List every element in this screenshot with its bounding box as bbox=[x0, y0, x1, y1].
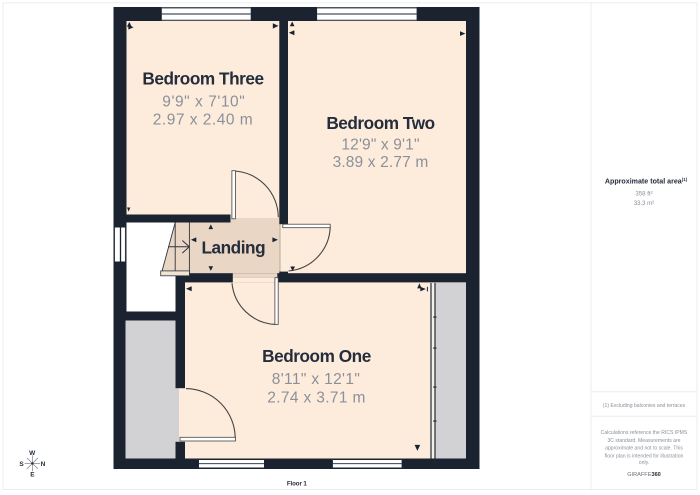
svg-text:Calculations reference the RIC: Calculations reference the RICS IPMS bbox=[601, 430, 688, 436]
svg-text:W: W bbox=[29, 450, 36, 457]
svg-text:Bedroom Two: Bedroom Two bbox=[326, 113, 434, 133]
svg-text:(1) Excluding balconies and te: (1) Excluding balconies and terraces bbox=[603, 403, 686, 409]
svg-text:E: E bbox=[30, 472, 35, 479]
svg-text:GIRAFFE360: GIRAFFE360 bbox=[627, 472, 661, 478]
svg-text:3C standard. Measurements are: 3C standard. Measurements are bbox=[607, 438, 680, 444]
svg-text:Bedroom Three: Bedroom Three bbox=[142, 68, 263, 88]
svg-text:approximate and not to scale.: approximate and not to scale. This bbox=[605, 446, 683, 452]
svg-text:floor plan is intended for ill: floor plan is intended for illustration bbox=[605, 454, 684, 460]
svg-text:8'11" x 12'1": 8'11" x 12'1" bbox=[272, 371, 360, 388]
svg-text:358 ft²: 358 ft² bbox=[635, 190, 652, 197]
svg-text:33.3 m²: 33.3 m² bbox=[634, 201, 654, 207]
svg-text:N: N bbox=[41, 461, 46, 468]
svg-text:3.89 x 2.77 m: 3.89 x 2.77 m bbox=[333, 154, 429, 171]
svg-text:Bedroom One: Bedroom One bbox=[262, 346, 371, 366]
svg-text:Approximate total area(1): Approximate total area(1) bbox=[605, 177, 688, 185]
svg-text:2.97 x 2.40 m: 2.97 x 2.40 m bbox=[153, 112, 253, 129]
svg-text:9'9" x 7'10": 9'9" x 7'10" bbox=[162, 94, 245, 111]
svg-text:Floor 1: Floor 1 bbox=[287, 481, 308, 488]
svg-text:Landing: Landing bbox=[201, 237, 265, 257]
svg-text:only.: only. bbox=[639, 460, 649, 466]
svg-text:12'9" x 9'1": 12'9" x 9'1" bbox=[341, 137, 419, 154]
svg-text:S: S bbox=[19, 461, 24, 468]
svg-text:2.74 x 3.71 m: 2.74 x 3.71 m bbox=[267, 390, 365, 407]
